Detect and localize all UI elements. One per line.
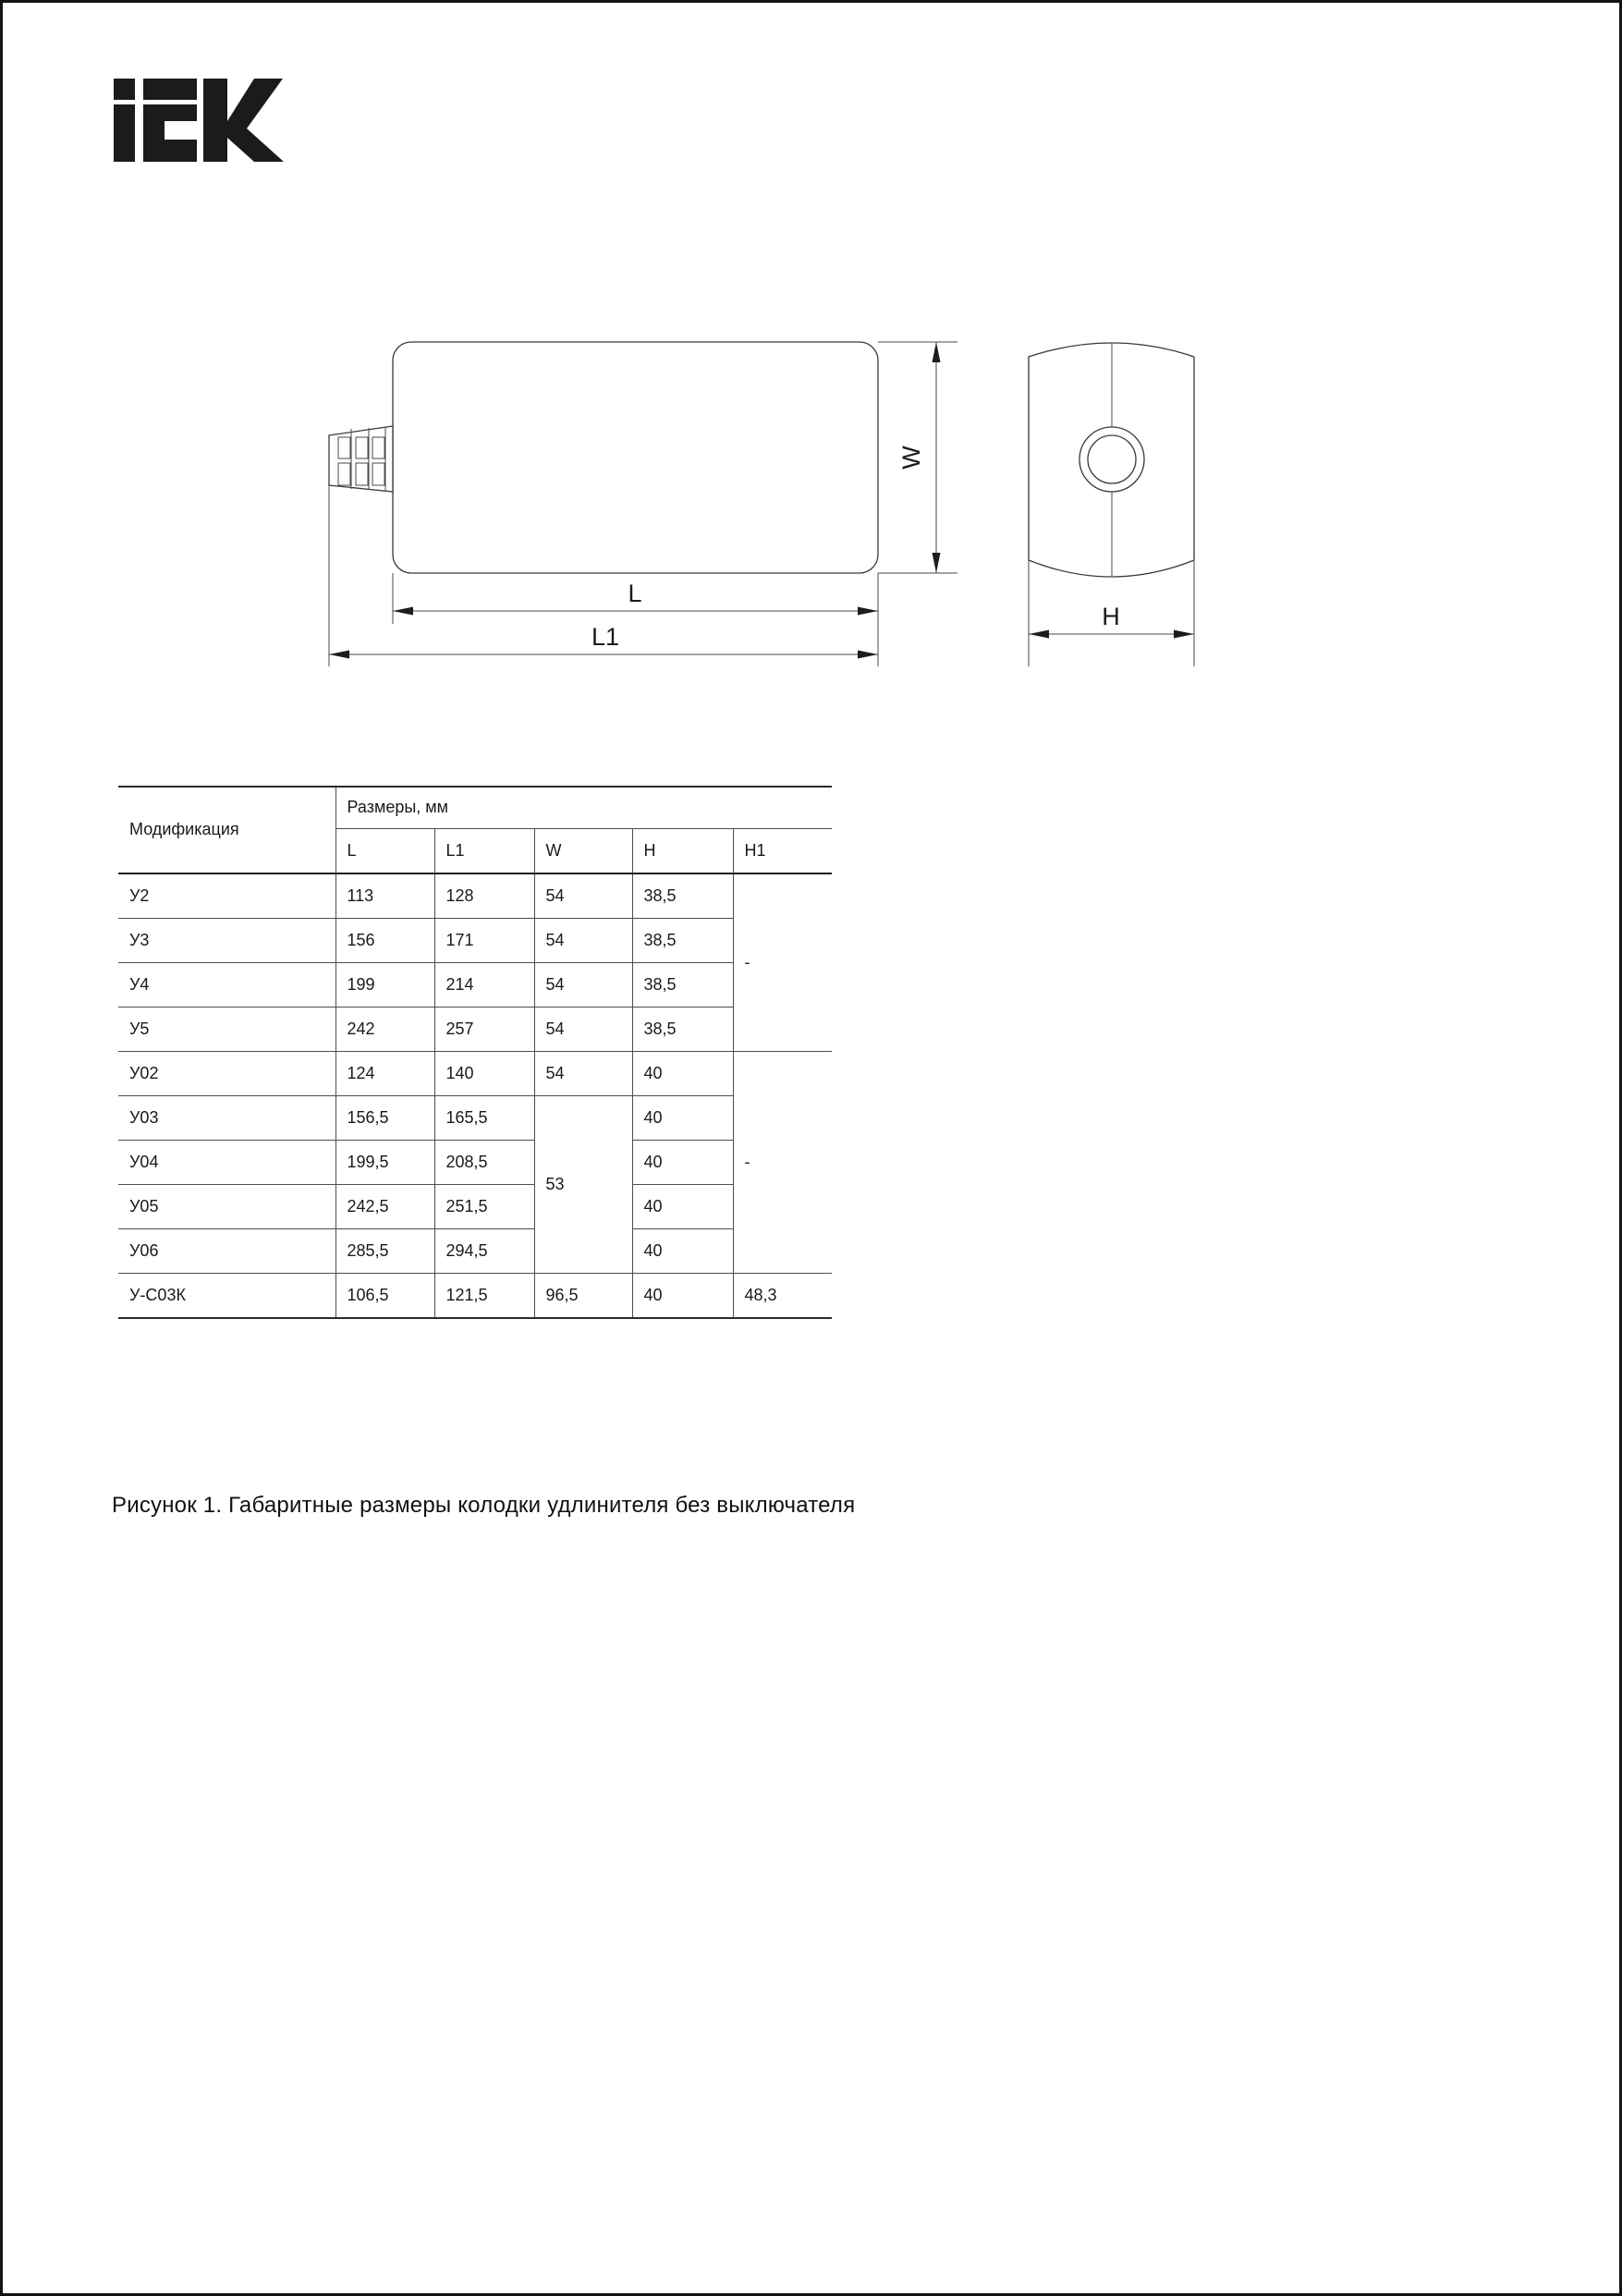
iek-logo [3, 3, 299, 178]
cell-H: 40 [632, 1274, 733, 1319]
cell-H1: 48,3 [733, 1274, 832, 1319]
cell-W: 54 [534, 873, 632, 919]
cell-H: 40 [632, 1052, 733, 1096]
header-col-H: H [632, 829, 733, 874]
header-dimensions-group: Размеры, мм [335, 787, 832, 829]
cell-L: 156 [335, 919, 434, 963]
cell-L: 199,5 [335, 1141, 434, 1185]
figure-caption: Рисунок 1. Габаритные размеры колодки уд… [112, 1493, 855, 1519]
header-col-H1: H1 [733, 829, 832, 874]
table-row: У4 199 214 54 38,5 [118, 963, 832, 1008]
header-modification: Модификация [118, 787, 335, 873]
cell-mod: У06 [118, 1229, 335, 1274]
iek-logo-letters [114, 79, 284, 162]
cell-mod: У2 [118, 873, 335, 919]
dim-label-H: H [1102, 603, 1120, 630]
cell-H: 38,5 [632, 1008, 733, 1052]
cell-L1: 165,5 [434, 1096, 534, 1141]
cell-L: 106,5 [335, 1274, 434, 1319]
cell-H: 38,5 [632, 873, 733, 919]
dimension-drawing: L L1 W H [3, 308, 1622, 705]
dim-L: L [393, 580, 878, 616]
table-row: У3 156 171 54 38,5 [118, 919, 832, 963]
cell-mod: У4 [118, 963, 335, 1008]
cell-W: 54 [534, 1008, 632, 1052]
cell-H1: - [733, 873, 832, 1052]
cell-W: 54 [534, 963, 632, 1008]
cell-W: 96,5 [534, 1274, 632, 1319]
dimensions-table: Модификация Размеры, мм L L1 W H H1 У2 1… [118, 786, 832, 1319]
header-col-W: W [534, 829, 632, 874]
cell-W: 53 [534, 1096, 632, 1274]
cell-L: 113 [335, 873, 434, 919]
cell-L: 242,5 [335, 1185, 434, 1229]
table-row: У-С03К 106,5 121,5 96,5 40 48,3 [118, 1274, 832, 1319]
cell-mod: У05 [118, 1185, 335, 1229]
cell-L1: 128 [434, 873, 534, 919]
table-header-row-1: Модификация Размеры, мм [118, 787, 832, 829]
cell-H: 38,5 [632, 963, 733, 1008]
cell-mod: У3 [118, 919, 335, 963]
cell-L: 285,5 [335, 1229, 434, 1274]
table-row: У5 242 257 54 38,5 [118, 1008, 832, 1052]
cell-L1: 121,5 [434, 1274, 534, 1319]
table-row: У05 242,5 251,5 40 [118, 1185, 832, 1229]
dim-label-L: L [628, 580, 641, 607]
cell-L1: 171 [434, 919, 534, 963]
cell-W: 54 [534, 919, 632, 963]
cell-H: 40 [632, 1185, 733, 1229]
end-view-inner-circle [1088, 435, 1136, 483]
header-col-L1: L1 [434, 829, 534, 874]
cell-L1: 251,5 [434, 1185, 534, 1229]
cell-H: 40 [632, 1229, 733, 1274]
dim-H: H [1029, 603, 1194, 639]
cell-H: 38,5 [632, 919, 733, 963]
cell-L1: 214 [434, 963, 534, 1008]
dim-label-W: W [897, 446, 925, 470]
cell-W: 54 [534, 1052, 632, 1096]
cell-mod: У-С03К [118, 1274, 335, 1319]
table-row: У04 199,5 208,5 40 [118, 1141, 832, 1185]
dim-L1: L1 [329, 623, 878, 659]
cell-H: 40 [632, 1096, 733, 1141]
cell-L1: 140 [434, 1052, 534, 1096]
table-row: У03 156,5 165,5 53 40 [118, 1096, 832, 1141]
cell-H1: - [733, 1052, 832, 1274]
dim-W: W [897, 342, 941, 573]
side-view-body [393, 342, 878, 573]
document-page: L L1 W H [0, 0, 1622, 2296]
cell-mod: У04 [118, 1141, 335, 1185]
table-row: У2 113 128 54 38,5 - [118, 873, 832, 919]
table-row: У06 285,5 294,5 40 [118, 1229, 832, 1274]
cable-gland [329, 426, 393, 492]
cell-L: 156,5 [335, 1096, 434, 1141]
cell-H: 40 [632, 1141, 733, 1185]
dim-label-L1: L1 [591, 623, 619, 651]
header-col-L: L [335, 829, 434, 874]
cell-L: 124 [335, 1052, 434, 1096]
cell-L1: 208,5 [434, 1141, 534, 1185]
cell-L1: 294,5 [434, 1229, 534, 1274]
cell-mod: У02 [118, 1052, 335, 1096]
cell-mod: У03 [118, 1096, 335, 1141]
table-row: У02 124 140 54 40 - [118, 1052, 832, 1096]
cell-mod: У5 [118, 1008, 335, 1052]
cell-L1: 257 [434, 1008, 534, 1052]
cell-L: 199 [335, 963, 434, 1008]
cell-L: 242 [335, 1008, 434, 1052]
